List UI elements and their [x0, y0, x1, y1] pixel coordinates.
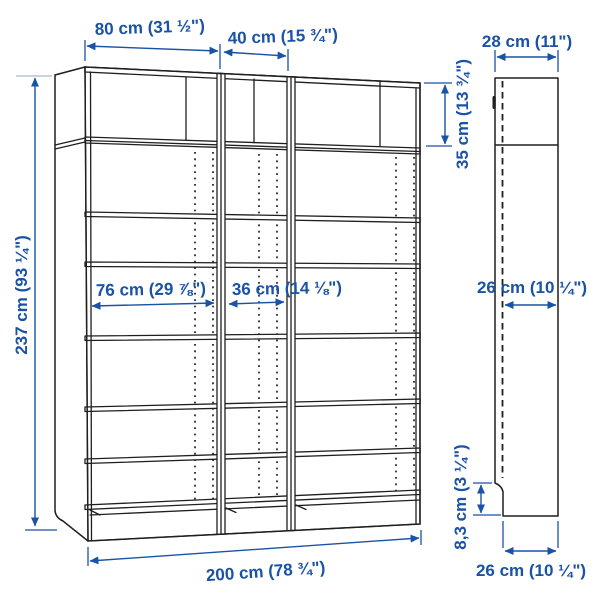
dim-label-section-width-left: 80 cm (31 ½") [94, 16, 205, 39]
dim-section-width-middle: 40 cm (15 ¾") [224, 25, 338, 71]
dim-label-inner-width-middle: 36 cm (14 ⅛") [232, 278, 342, 299]
dim-total-height: 237 cm (93 ¼") [12, 76, 57, 530]
dim-label-inner-width-left: 76 cm (29 ⅞") [96, 279, 206, 300]
dim-top-section-height: 35 cm (13 ¾") [424, 59, 472, 169]
dim-label-inner-depth: 26 cm (10 ¼") [477, 278, 587, 297]
left-side-panel [55, 67, 88, 541]
side-fitting-mark [493, 96, 496, 109]
dim-label-top-section-height: 35 cm (13 ¾") [453, 59, 472, 169]
bookcase-side-view [493, 78, 559, 516]
dim-label-plinth-height: 8,3 cm (3 ¼") [451, 444, 470, 549]
dim-label-depth: 28 cm (11") [482, 32, 572, 51]
dim-label-total-width: 200 cm (78 ¾") [205, 558, 326, 585]
dim-plinth-height: 8,3 cm (3 ¼") [451, 444, 501, 549]
dim-depth: 28 cm (11") [482, 32, 572, 72]
dim-section-width-left: 80 cm (31 ½") [85, 16, 220, 69]
dim-base-depth: 26 cm (10 ¼") [476, 521, 586, 580]
dim-label-section-width-middle: 40 cm (15 ¾") [227, 25, 338, 48]
bookcase-diagram-svg: 80 cm (31 ½") 40 cm (15 ¾") 237 cm (93 ¼… [0, 0, 600, 600]
dim-label-total-height: 237 cm (93 ¼") [12, 235, 31, 355]
dimension-diagram-canvas: 80 cm (31 ½") 40 cm (15 ¾") 237 cm (93 ¼… [0, 0, 600, 600]
dim-label-base-depth: 26 cm (10 ¼") [476, 561, 586, 580]
side-outline [495, 78, 558, 516]
